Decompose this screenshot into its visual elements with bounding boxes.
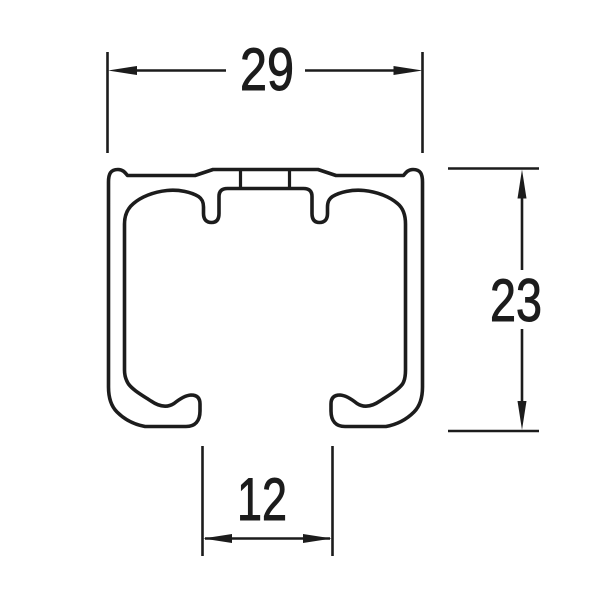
arrowhead-left-icon — [108, 66, 137, 75]
arrowhead-slot-right-icon — [303, 534, 332, 543]
profile-shape — [109, 170, 423, 427]
technical-drawing: 29 23 12 — [0, 0, 600, 600]
dimension-label-top-width: 29 — [240, 36, 294, 103]
arrowhead-up-icon — [518, 170, 527, 199]
dimension-top-width: 29 — [108, 36, 423, 153]
dimension-bottom-slot: 12 — [203, 446, 333, 556]
arrowhead-slot-left-icon — [203, 534, 232, 543]
arrowhead-right-icon — [394, 66, 423, 75]
arrowhead-down-icon — [518, 401, 527, 430]
dimension-label-bottom-slot: 12 — [237, 466, 287, 533]
drawing-canvas: 29 23 12 — [0, 0, 600, 600]
dimension-label-right-height: 23 — [490, 267, 542, 334]
dimension-right-height: 23 — [448, 169, 542, 432]
profile-outline — [109, 170, 423, 427]
